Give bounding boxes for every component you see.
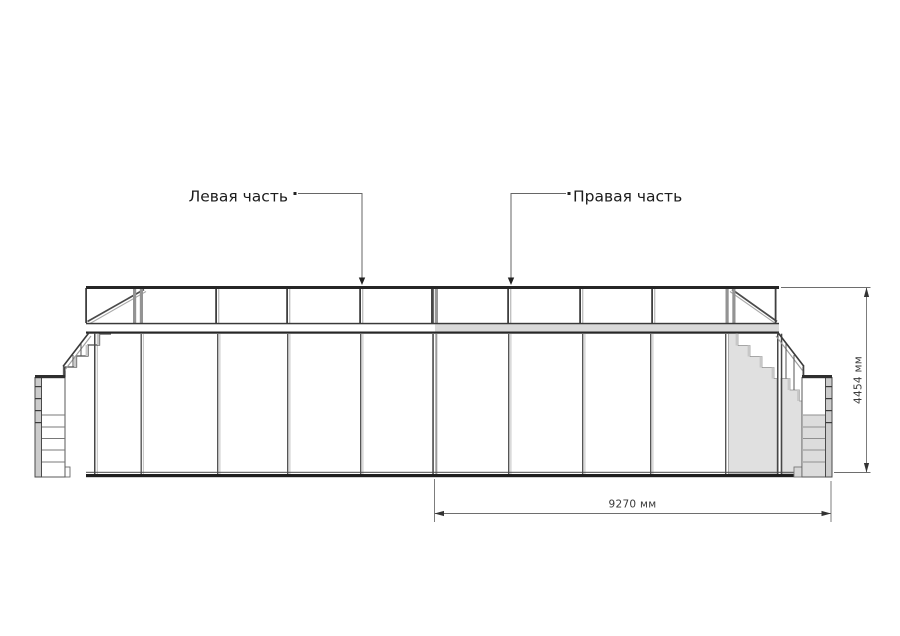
elevation-drawing: Левая часть Правая часть (0, 0, 900, 636)
leader-arrow-right-icon (508, 278, 514, 286)
right-understair-panel (729, 334, 778, 474)
railing-brace-right-shadow (730, 292, 776, 324)
elevation-drawing-page: Левая часть Правая часть (0, 0, 900, 636)
right-stair-box-fill (803, 415, 826, 477)
wall-panels (86, 334, 802, 478)
leader-dot-right (568, 192, 571, 195)
dim-arrow-bottom-icon (864, 463, 869, 473)
dimension-width: 9270 мм (435, 479, 832, 522)
platform-railing (85, 286, 779, 324)
railing-posts (85, 288, 776, 323)
left-stair-box-cap (35, 375, 65, 378)
dim-arrow-top-icon (864, 288, 869, 298)
right-stair-side-rail (826, 378, 833, 478)
right-stair-rail-shadow (776, 336, 803, 371)
label-right-part: Правая часть (508, 188, 682, 286)
dim-arrow-right-icon (822, 511, 832, 516)
label-left-part: Левая часть (189, 188, 366, 286)
wall-base-thin-line (86, 472, 802, 473)
railing-brace-left-shadow (90, 292, 146, 324)
leader-arrow-left-icon (359, 278, 365, 286)
dim-width-value: 9270 мм (608, 499, 656, 511)
left-part-label-text: Левая часть (189, 188, 288, 206)
leader-dot-left (294, 192, 297, 195)
dim-height-value: 4454 мм (853, 356, 865, 404)
left-staircase (35, 332, 111, 477)
deck-right-highlight (435, 324, 779, 331)
deck-top-edge (86, 323, 779, 325)
right-part-label-text: Правая часть (573, 188, 682, 206)
wall-joints (94, 334, 782, 475)
wall-base-line (86, 474, 802, 477)
railing-brace-right (732, 290, 777, 322)
dim-arrow-left-icon (435, 511, 445, 516)
leader-line-right (511, 194, 566, 280)
leader-line-left (298, 194, 362, 280)
right-stair-box-cap (802, 375, 832, 378)
railing-top-rail (86, 286, 779, 289)
left-stair-side-rail (35, 378, 42, 478)
platform-deck (86, 323, 779, 334)
deck-bottom-edge (86, 332, 779, 334)
